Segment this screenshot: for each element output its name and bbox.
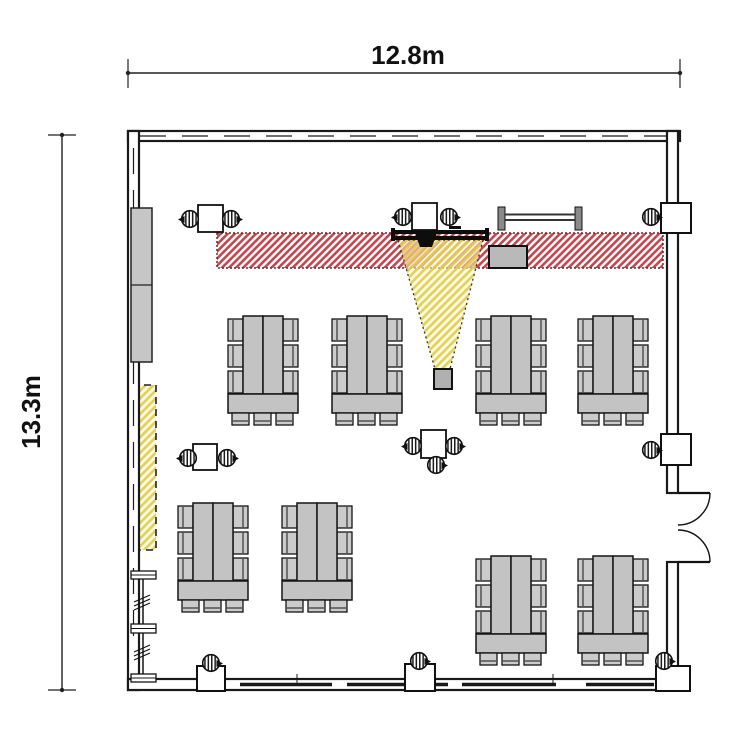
width-dimension: 12.8m: [126, 40, 682, 88]
desk-mid-center: [421, 430, 446, 458]
table-islands: [178, 316, 648, 665]
projector-beam: [398, 240, 483, 369]
column-right-mid: [661, 434, 691, 465]
stool-icon: [176, 450, 196, 467]
stool-icon: [178, 211, 198, 228]
screen-end-cap: [391, 228, 395, 241]
door-swing-arc: [678, 530, 710, 562]
floor-plan-canvas: 12.8m 13.3m: [0, 0, 750, 750]
table-group: [476, 556, 546, 665]
height-dimension: 13.3m: [16, 133, 76, 692]
screen-bracket: [449, 226, 461, 229]
table-group: [178, 503, 248, 612]
entrance-door: [678, 493, 710, 562]
table-group: [282, 503, 352, 612]
table-group: [578, 316, 648, 425]
table-group: [228, 316, 298, 425]
stool-icon: [391, 209, 411, 226]
cabinet: [131, 208, 152, 362]
stool-icon: [446, 438, 466, 455]
screen-end-cap: [485, 228, 489, 241]
table-group: [578, 556, 648, 665]
column-bottom-corner: [656, 666, 690, 691]
equipment-box: [489, 246, 527, 268]
stool-icon: [428, 457, 448, 474]
stool-icon: [441, 209, 461, 226]
column-right-top: [661, 203, 691, 233]
dimension-width-label: 12.8m: [371, 40, 445, 70]
door-swing-arc: [678, 493, 710, 525]
folding-table: [498, 207, 582, 230]
stool-icon: [643, 209, 663, 226]
screen: [393, 230, 487, 234]
table-group: [476, 316, 546, 425]
screen: [393, 236, 487, 240]
floor-plan-page: 12.8m 13.3m: [0, 0, 750, 750]
stool-icon: [643, 442, 663, 459]
stool-icon: [401, 438, 421, 455]
desk-top-left: [198, 205, 223, 232]
stool-icon: [219, 450, 239, 467]
dimension-height-label: 13.3m: [16, 375, 46, 449]
desk-top-center: [412, 203, 437, 230]
stool-icon: [223, 211, 243, 228]
projector-unit: [434, 369, 452, 389]
table-group: [332, 316, 402, 425]
